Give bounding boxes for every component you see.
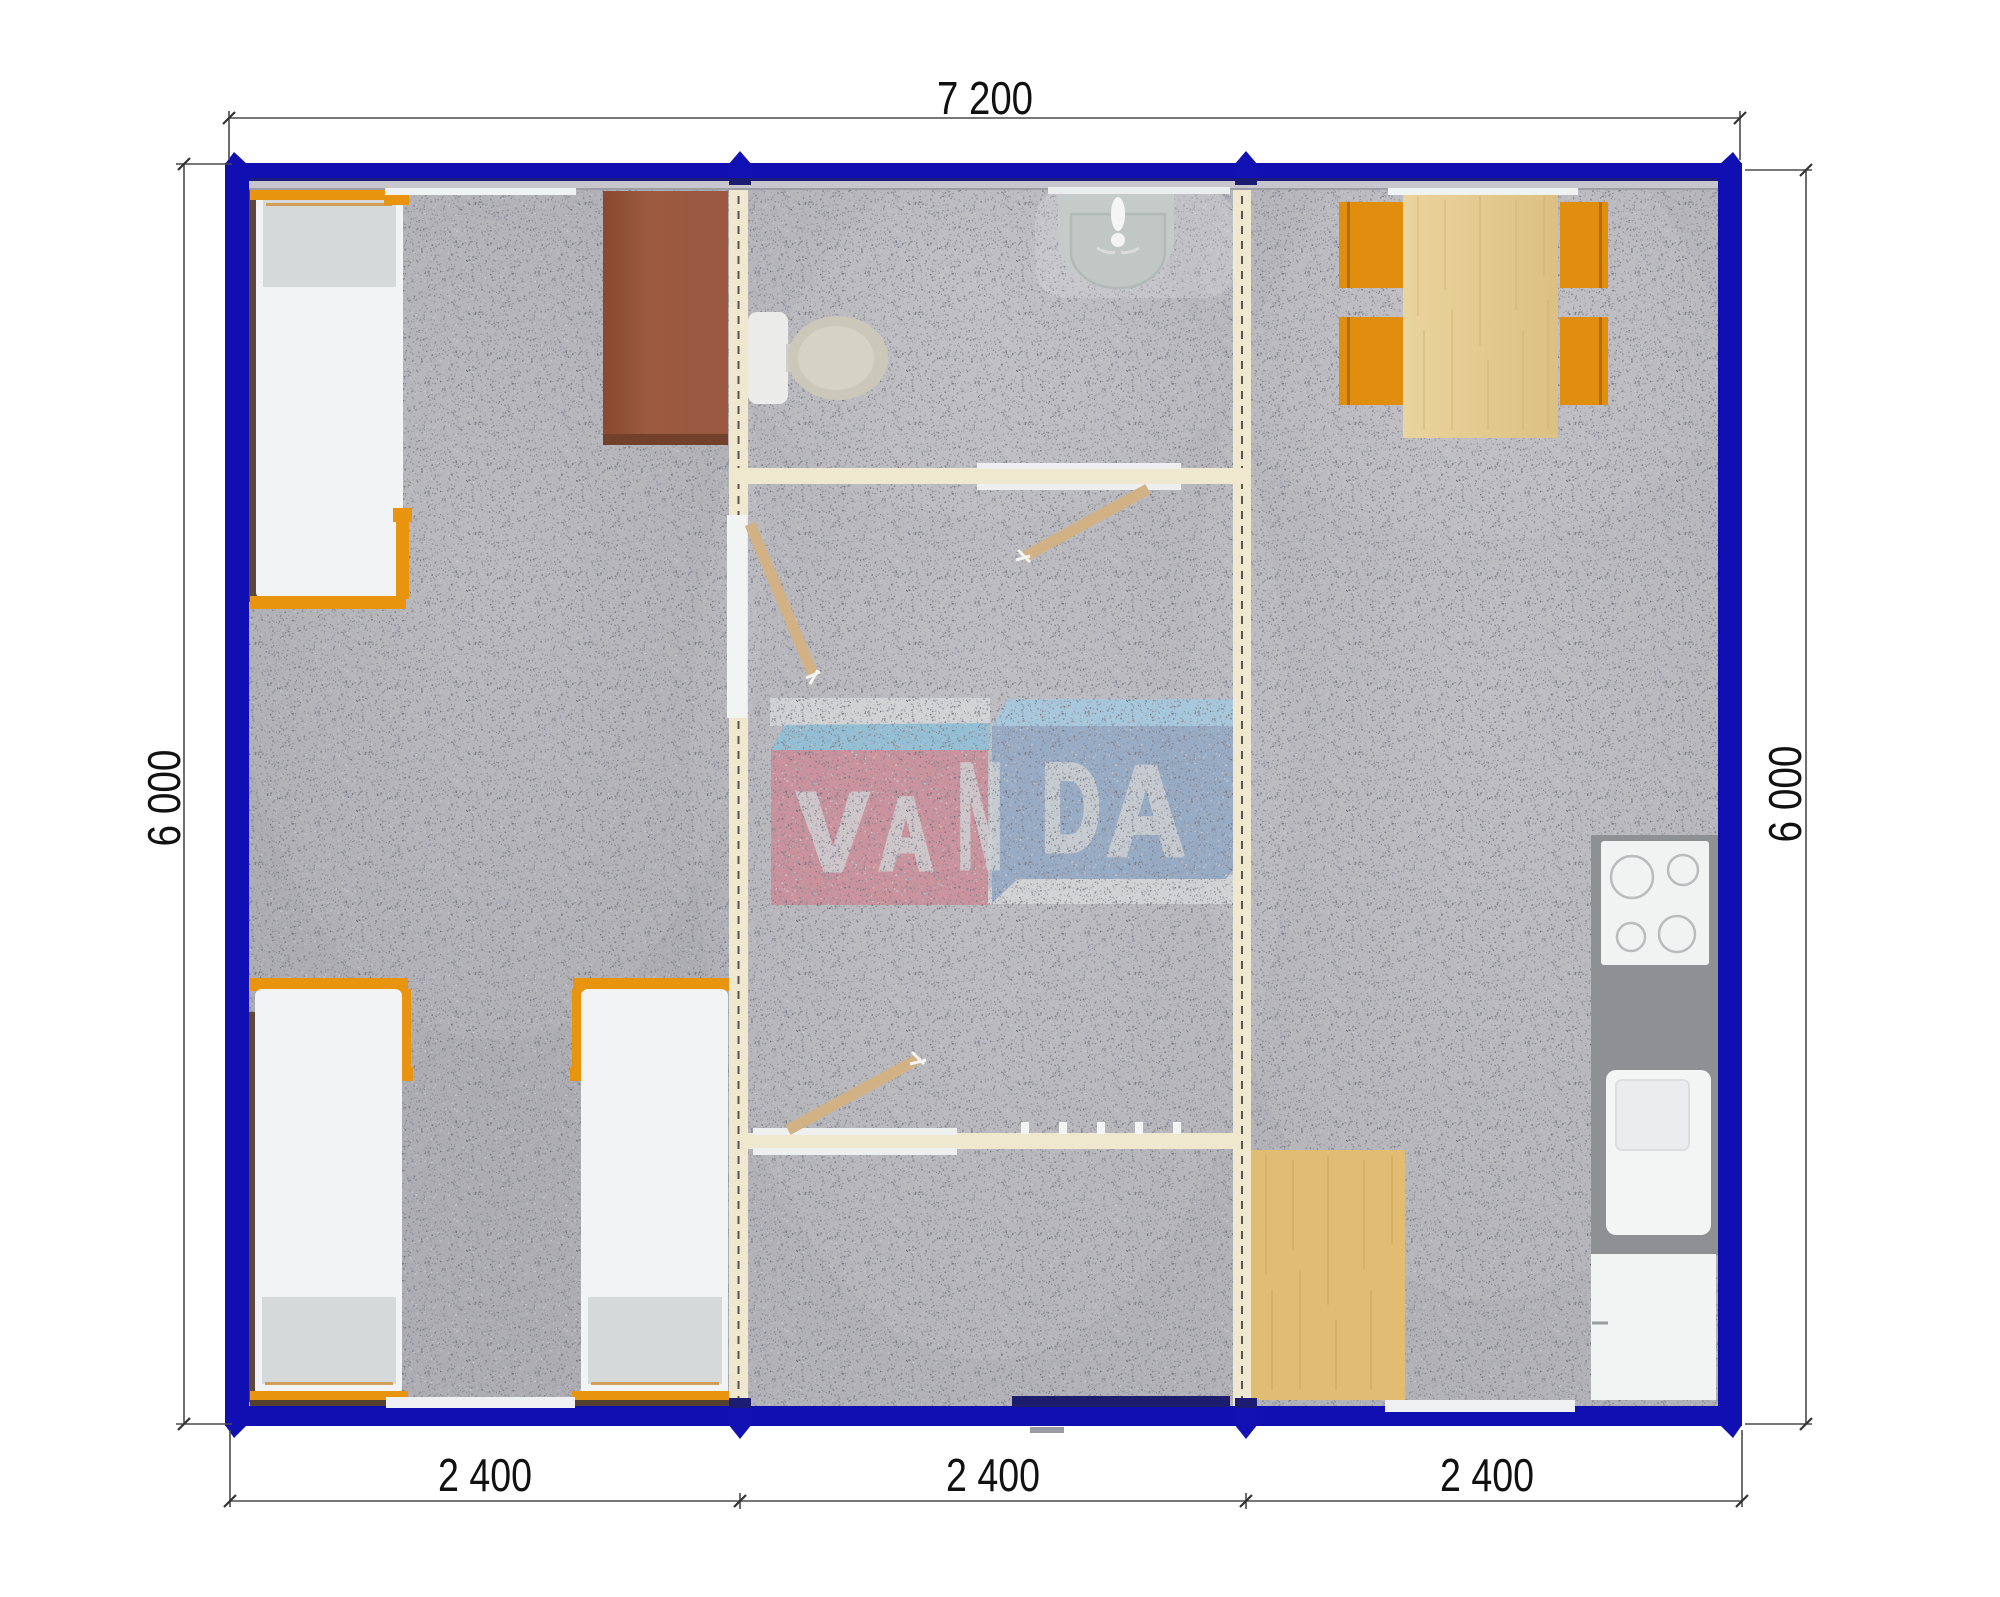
svg-text:6 000: 6 000: [1759, 746, 1811, 843]
svg-text:2 400: 2 400: [946, 1449, 1040, 1501]
svg-text:2 400: 2 400: [1440, 1449, 1534, 1501]
svg-text:6 000: 6 000: [138, 750, 190, 847]
svg-text:2 400: 2 400: [438, 1449, 532, 1501]
svg-text:7 200: 7 200: [937, 72, 1033, 124]
